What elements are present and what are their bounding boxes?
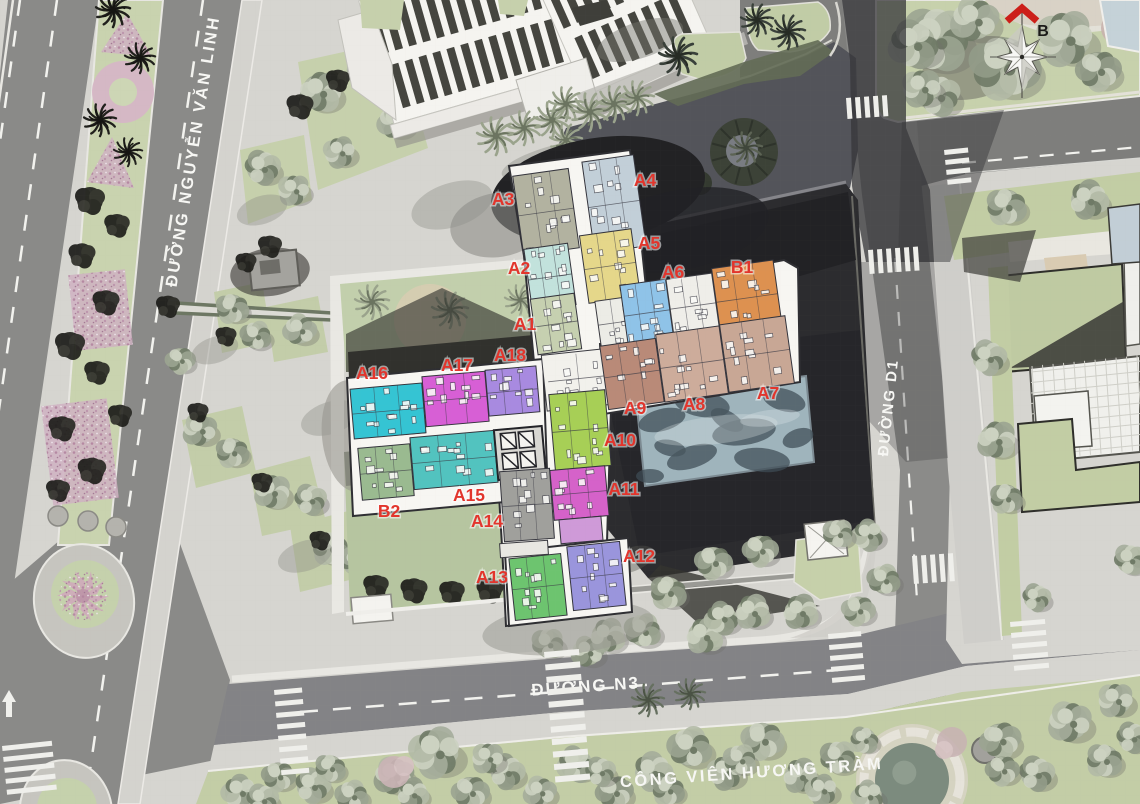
svg-text:B: B <box>1037 23 1049 40</box>
